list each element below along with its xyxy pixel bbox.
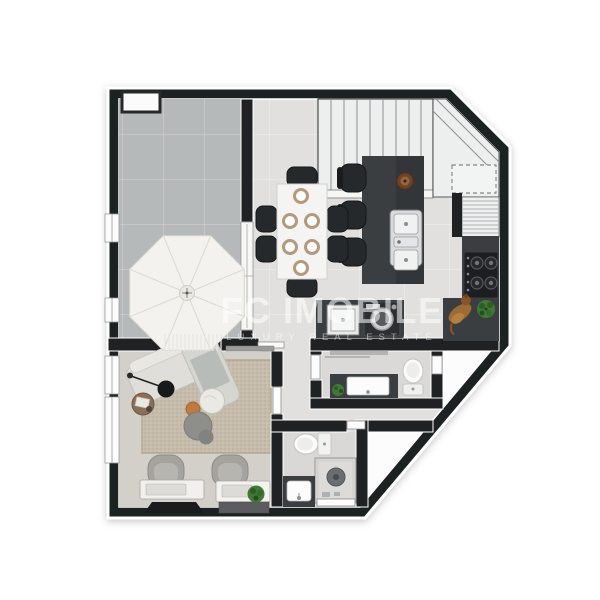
wall-tv <box>226 346 274 351</box>
shower <box>315 458 356 506</box>
powder-plant <box>332 384 344 396</box>
powder-door <box>311 355 320 379</box>
bathroom-door <box>347 421 365 429</box>
stair-wall-stub <box>452 193 462 237</box>
powder-south-wall <box>310 398 443 409</box>
stair-cutline-box <box>452 165 496 193</box>
coffee-table <box>200 389 225 414</box>
bathroom-toilet <box>294 433 331 455</box>
kitchen-plant <box>477 300 495 318</box>
island-sink <box>390 210 422 270</box>
watermark: FC IMOBILE LUXURY REAL ESTATE <box>221 290 444 343</box>
living-side-door <box>273 387 281 414</box>
powder-faucet <box>366 390 370 394</box>
terrace-partition-upper <box>241 99 253 222</box>
wall-niche <box>122 92 160 112</box>
bathroom-sink <box>283 476 315 507</box>
shower-door <box>317 499 355 506</box>
bathroom-east-wall <box>356 420 368 507</box>
cooktop <box>464 252 498 298</box>
decor-bowl <box>397 173 413 189</box>
living-plant <box>248 486 265 503</box>
bathroom-north-wall-west <box>271 420 347 432</box>
parasol-fringe <box>165 334 221 351</box>
console-left <box>140 480 204 513</box>
floorplan-screenshot: FC IMOBILE LUXURY REAL ESTATE <box>0 0 600 600</box>
powder-west-wall-top <box>310 351 322 355</box>
living-east-wall-upper <box>271 351 283 387</box>
floorplan-svg: FC IMOBILE LUXURY REAL ESTATE <box>0 0 600 600</box>
closet-door <box>432 356 442 374</box>
side-table <box>132 393 154 415</box>
watermark-tagline: LUXURY REAL ESTATE <box>226 332 437 343</box>
bathroom-north-wall-east <box>365 420 433 432</box>
laundry-slider-rail <box>330 351 388 355</box>
powder-toilet <box>403 359 423 395</box>
watermark-brand: FC IMOBILE <box>221 290 444 331</box>
